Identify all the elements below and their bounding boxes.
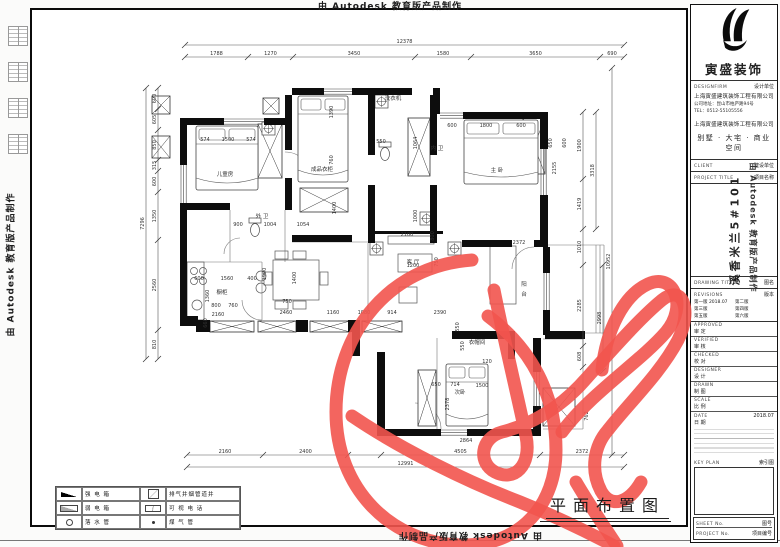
legend-label: 排气井烟管道井 <box>166 487 240 501</box>
autodesk-watermark-right: 由 Autodesk 教育版产品制作 <box>748 162 759 292</box>
revision-cell: 第四版 <box>735 306 774 312</box>
drawing-frame-border <box>30 8 688 527</box>
legend-table: 强 电 箱 排气井烟管道井 弱 电 箱 可 视 电 话 落 水 管 煤 气 管 <box>55 486 241 530</box>
client-en: CLIENT <box>694 164 713 169</box>
legend-label: 可 视 电 话 <box>166 501 240 515</box>
key-plan-cn: 索引图 <box>759 459 774 466</box>
legend-label: 煤 气 管 <box>166 515 240 529</box>
sheet-bottom-line <box>0 540 780 541</box>
revision-strip-cell <box>8 26 28 46</box>
strong-power-box-symbol <box>56 487 82 501</box>
key-plan-row: KEY PLAN 索引图 <box>691 459 777 466</box>
legend-label: 弱 电 箱 <box>82 501 140 515</box>
revision-cell: 第三版 <box>694 306 733 312</box>
date-value: 2018.07 <box>753 413 774 419</box>
weak-power-box-symbol <box>56 501 82 515</box>
project-no-cn: 项目编号 <box>752 530 772 537</box>
title-block: 寅盛装饰 DESIGNFIRM 设计单位 上海寅盛建筑装饰工程有限公司 公司地址… <box>690 4 778 543</box>
drawing-title: 平面布置图 <box>546 492 669 519</box>
signoff-designer: DESIGNER设 计 <box>691 367 777 382</box>
key-plan-en: KEY PLAN <box>694 461 720 466</box>
gas-pipe-symbol <box>140 515 166 529</box>
company-tel: TEL：0512-55105556 <box>694 108 774 114</box>
key-plan-box <box>694 467 774 515</box>
signoff-checked: CHECKED校 对 <box>691 352 777 367</box>
company-tagline: 别墅 · 大宅 · 商业空间 <box>694 129 774 157</box>
sheet-no-cn: 图号 <box>762 520 772 527</box>
design-firm-row: DESIGNFIRM 设计单位 上海寅盛建筑装饰工程有限公司 公司地址：昆山市柏… <box>691 81 777 160</box>
video-phone-symbol <box>140 501 166 515</box>
general-notes-text <box>694 429 774 457</box>
revision-strip <box>8 26 28 170</box>
autodesk-watermark-left: 由 Autodesk 教育版产品制作 <box>4 192 17 336</box>
drawing-title-cn: 图名 <box>764 279 774 286</box>
company-name-2: 上海寅盛建筑装饰工程有限公司 <box>694 120 774 128</box>
revision-strip-cell <box>8 134 28 154</box>
down-pipe-symbol <box>56 515 82 529</box>
legend-label: 强 电 箱 <box>82 487 140 501</box>
signoff-section: APPROVED审 定 VERIFIED审 核 CHECKED校 对 DESIG… <box>691 322 777 427</box>
revisions-section: REVISIONS 版本 第一版 2018.07 第二版 第三版 第四版 第五版… <box>691 289 777 322</box>
signoff-approved: APPROVED审 定 <box>691 322 777 337</box>
sheet-number-box: SHEET No. 图号 PROJECT No. 项目编号 <box>693 517 775 540</box>
revision-strip-cell <box>8 62 28 82</box>
autodesk-watermark-bottom: 由 Autodesk 教育版产品制作 <box>398 530 542 543</box>
company-address: 公司地址：昆山市柏庐路94号 <box>694 101 774 107</box>
signoff-date: DATE日 期 2018.07 <box>691 412 777 427</box>
revision-cell: 第六版 <box>735 313 774 319</box>
design-firm-en: DESIGNFIRM <box>694 85 727 90</box>
revision-cell: 第二版 <box>735 299 774 305</box>
revision-strip-cell <box>8 98 28 118</box>
revisions-en: REVISIONS <box>694 293 723 298</box>
revisions-cn: 版本 <box>764 291 774 298</box>
revision-cell: 第五版 <box>694 313 733 319</box>
autodesk-watermark-top: 由 Autodesk 教育版产品制作 <box>318 0 462 12</box>
design-firm-cn: 设计单位 <box>754 83 774 90</box>
client-row: CLIENT 建设单位 <box>691 160 777 172</box>
company-logo-icon <box>691 5 777 57</box>
brand-name: 寅盛装饰 <box>691 57 777 81</box>
revision-cell: 第一版 2018.07 <box>694 299 733 305</box>
signoff-verified: VERIFIED审 核 <box>691 337 777 352</box>
signoff-scale: SCALE比 例 <box>691 397 777 412</box>
legend-label: 落 水 管 <box>82 515 140 529</box>
vent-shaft-symbol <box>140 487 166 501</box>
project-name-vertical: 溪香米兰5#101 <box>691 184 777 277</box>
company-name: 上海寅盛建筑装饰工程有限公司 <box>694 92 774 100</box>
drawing-sheet: 由 Autodesk 教育版产品制作 由 Autodesk 教育版产品制作 由 … <box>0 0 780 547</box>
project-no-en: PROJECT No. <box>696 532 730 537</box>
signoff-drawn: DRAWN制 图 <box>691 382 777 397</box>
